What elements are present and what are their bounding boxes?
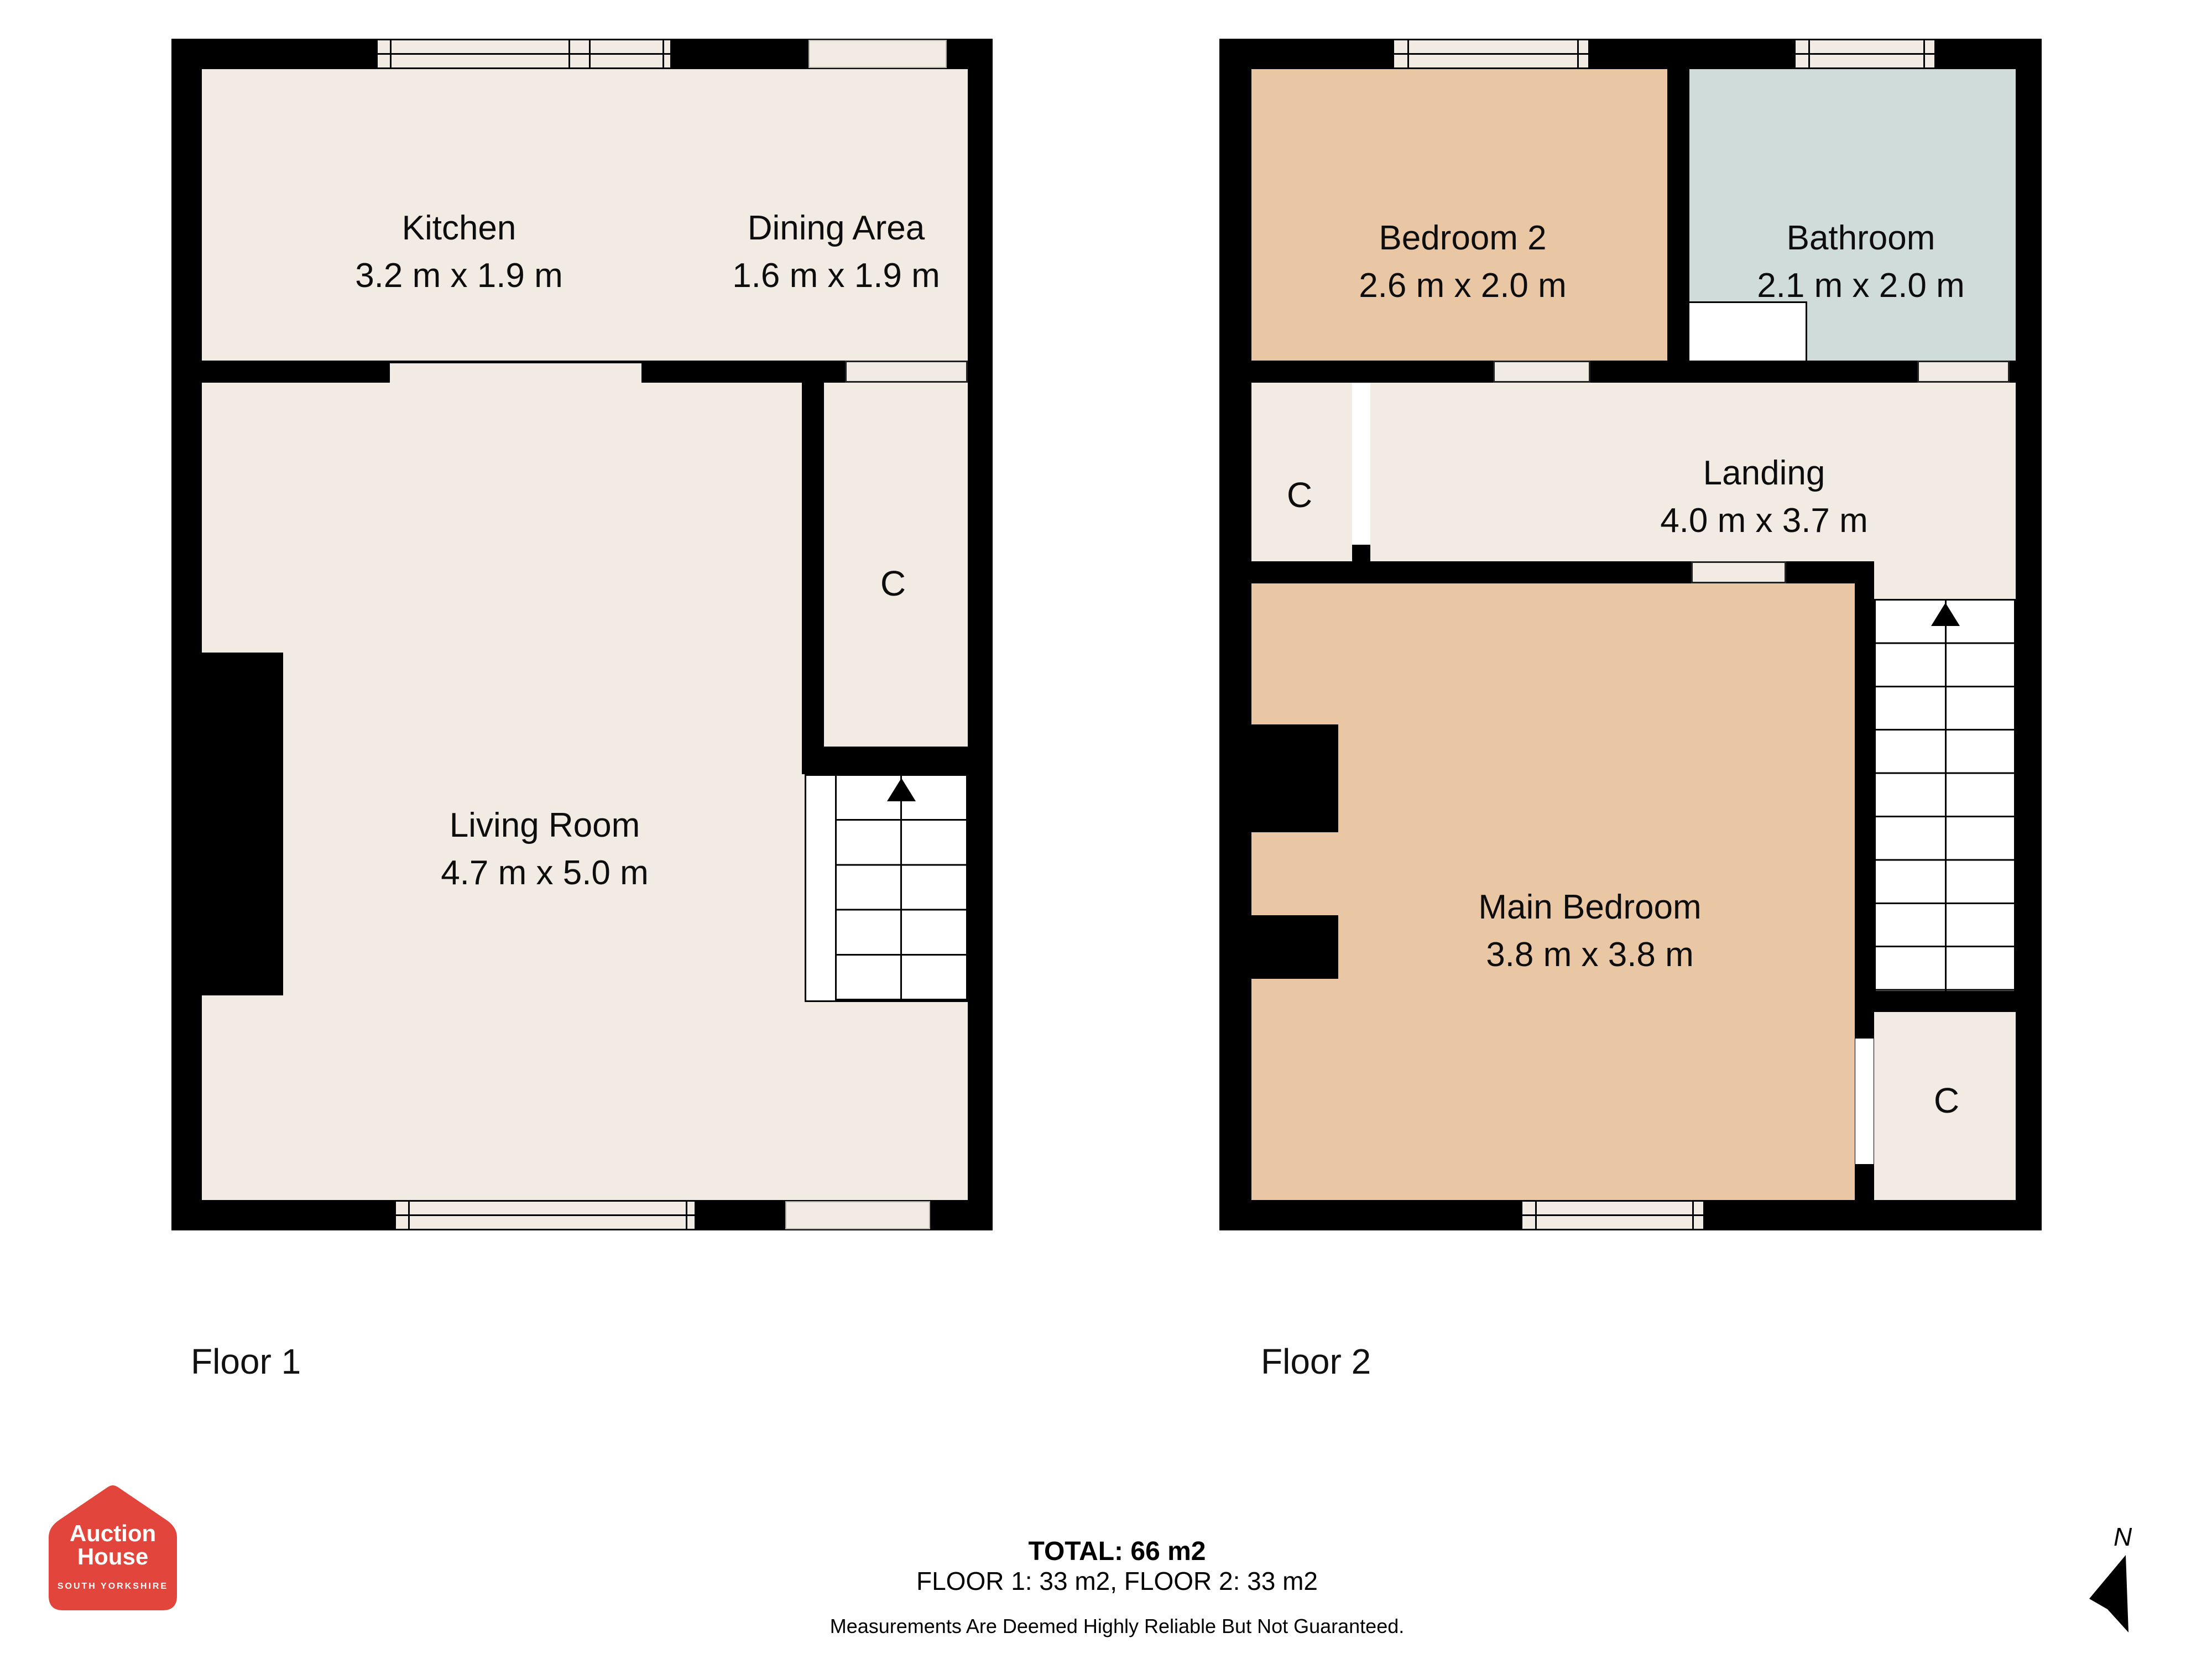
bedroom2-label: Bedroom 2 2.6 m x 2.0 m bbox=[1297, 215, 1629, 310]
floor1-stairs bbox=[805, 774, 968, 1002]
bedroom2-door-opening bbox=[1493, 361, 1590, 383]
auction-house-logo: Auction House SOUTH YORKSHIRE bbox=[49, 1483, 177, 1610]
living-room-name: Living Room bbox=[379, 802, 711, 849]
bathroom-name: Bathroom bbox=[1695, 215, 2016, 262]
main-bedroom-dims: 3.8 m x 3.8 m bbox=[1424, 931, 1756, 979]
window-midline bbox=[1522, 1214, 1703, 1216]
floor1-caption: Floor 1 bbox=[191, 1341, 301, 1382]
logo-line3: SOUTH YORKSHIRE bbox=[49, 1582, 177, 1592]
north-label: N bbox=[2114, 1522, 2132, 1552]
disclaimer-text: Measurements Are Deemed Highly Reliable … bbox=[702, 1615, 1532, 1638]
window-divider bbox=[589, 40, 591, 67]
landing-name: Landing bbox=[1598, 450, 1930, 497]
window bbox=[376, 39, 672, 69]
floor1-plan: Kitchen 3.2 m x 1.9 m Dining Area 1.6 m … bbox=[171, 39, 993, 1230]
kitchen-dims: 3.2 m x 1.9 m bbox=[293, 252, 625, 300]
floor-areas-text: FLOOR 1: 33 m2, FLOOR 2: 33 m2 bbox=[702, 1566, 1532, 1596]
closet-stairs-wall bbox=[802, 747, 968, 774]
bathroom-door bbox=[1689, 301, 1807, 361]
landing-dims: 4.0 m x 3.7 m bbox=[1598, 497, 1930, 545]
floor2-stair-centerline bbox=[1945, 601, 1947, 991]
floor2-stairs bbox=[1874, 599, 2016, 993]
closet-side-wall bbox=[802, 361, 824, 747]
window-midline bbox=[1394, 53, 1588, 55]
bathroom-label: Bathroom 2.1 m x 2.0 m bbox=[1695, 215, 2016, 310]
kitchen-name: Kitchen bbox=[293, 205, 625, 252]
window-divider bbox=[568, 40, 570, 67]
total-area-text: TOTAL: 66 m2 bbox=[702, 1536, 1532, 1567]
stairs-up-arrow-icon bbox=[1931, 603, 1960, 626]
window-divider bbox=[1923, 40, 1925, 67]
main-bedroom-top-wall bbox=[1251, 561, 1691, 583]
chimney-breast-upper-1 bbox=[1251, 724, 1338, 832]
floor2-closet-door bbox=[1855, 1039, 1874, 1164]
window-midline bbox=[378, 53, 670, 55]
stairs-closet-wall bbox=[1874, 993, 2016, 1012]
main-bedroom-door-opening bbox=[1691, 561, 1786, 583]
landing-label: Landing 4.0 m x 3.7 m bbox=[1598, 450, 1930, 545]
floorplan-page: Kitchen 3.2 m x 1.9 m Dining Area 1.6 m … bbox=[0, 0, 2212, 1659]
chimney-breast-upper-2 bbox=[1251, 915, 1338, 979]
window-opening bbox=[808, 40, 947, 68]
dining-dims: 1.6 m x 1.9 m bbox=[670, 252, 968, 300]
window bbox=[394, 1200, 696, 1230]
bedroom2-dims: 2.6 m x 2.0 m bbox=[1297, 262, 1629, 310]
floor2-interior: Bedroom 2 2.6 m x 2.0 m Bathroom 2.1 m x… bbox=[1251, 69, 2016, 1200]
dining-name: Dining Area bbox=[670, 205, 968, 252]
main-bedroom-label: Main Bedroom 3.8 m x 3.8 m bbox=[1424, 884, 1756, 979]
window bbox=[1794, 39, 1936, 69]
window-midline bbox=[396, 1214, 695, 1216]
floor1-interior: Kitchen 3.2 m x 1.9 m Dining Area 1.6 m … bbox=[202, 69, 968, 1200]
window-divider bbox=[390, 40, 392, 67]
window bbox=[1392, 39, 1590, 69]
window-divider bbox=[1577, 40, 1579, 67]
window-divider bbox=[1535, 1202, 1537, 1229]
logo-line2: House bbox=[49, 1545, 177, 1568]
main-bedroom-name: Main Bedroom bbox=[1424, 884, 1756, 931]
chimney-breast bbox=[202, 653, 283, 995]
landing-top-wall-3 bbox=[2010, 361, 2016, 383]
kitchen-label: Kitchen 3.2 m x 1.9 m bbox=[293, 205, 625, 300]
bathroom-door-opening bbox=[1917, 361, 2010, 383]
window-divider bbox=[408, 1202, 410, 1229]
floor2-caption: Floor 2 bbox=[1261, 1341, 1371, 1382]
floor1-closet-label: C bbox=[838, 559, 948, 608]
window-midline bbox=[1796, 53, 1934, 55]
bedroom2-bathroom-wall bbox=[1667, 69, 1689, 361]
logo-line1: Auction bbox=[49, 1522, 177, 1545]
window-divider bbox=[1407, 40, 1409, 67]
stairs-up-arrow-icon bbox=[887, 778, 916, 801]
window-divider bbox=[1808, 40, 1810, 67]
bedroom2-name: Bedroom 2 bbox=[1297, 215, 1629, 262]
landing-closet-door bbox=[1352, 383, 1370, 545]
floor2-plan: Bedroom 2 2.6 m x 2.0 m Bathroom 2.1 m x… bbox=[1219, 39, 2042, 1230]
floor2-closet-label: C bbox=[1891, 1076, 2002, 1125]
north-arrow-icon bbox=[2089, 1554, 2130, 1636]
window-divider bbox=[662, 40, 664, 67]
floor1-stair-centerline bbox=[900, 776, 902, 1000]
living-room-label: Living Room 4.7 m x 5.0 m bbox=[379, 802, 711, 897]
landing-top-wall-2 bbox=[1590, 361, 1917, 383]
dining-label: Dining Area 1.6 m x 1.9 m bbox=[670, 205, 968, 300]
living-room-dims: 4.7 m x 5.0 m bbox=[379, 849, 711, 897]
kitchen-opening bbox=[390, 361, 641, 383]
window bbox=[1521, 1200, 1705, 1230]
landing-top-wall bbox=[1251, 361, 1493, 383]
landing-closet-label: C bbox=[1251, 470, 1348, 520]
window-divider bbox=[686, 1202, 687, 1229]
window-divider bbox=[1692, 1202, 1694, 1229]
dining-opening bbox=[845, 361, 968, 383]
kitchen-living-wall bbox=[202, 361, 390, 383]
window-opening bbox=[785, 1201, 930, 1229]
landing-closet-stub bbox=[1352, 545, 1370, 561]
